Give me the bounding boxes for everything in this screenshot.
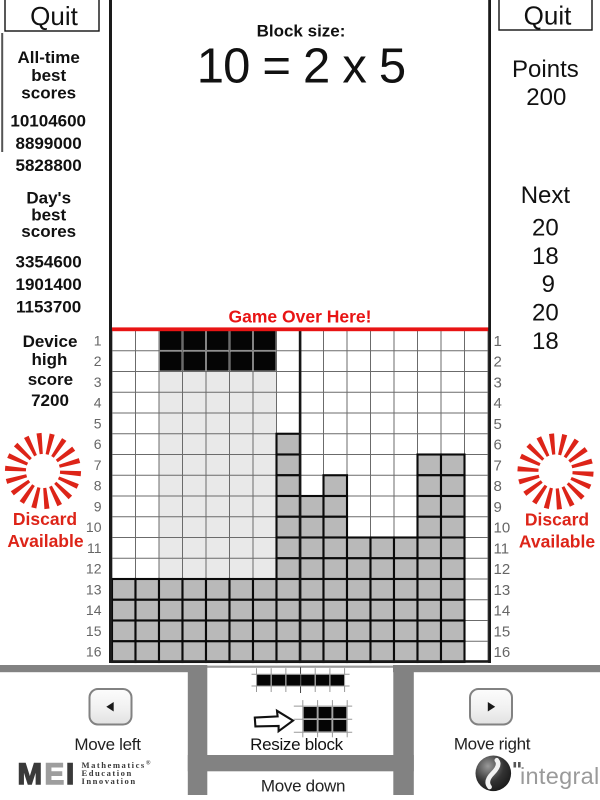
svg-text:2: 2 <box>94 353 102 369</box>
svg-text:5: 5 <box>94 415 102 431</box>
svg-text:5: 5 <box>494 416 502 433</box>
svg-text:20: 20 <box>532 214 559 241</box>
svg-text:7: 7 <box>94 457 102 473</box>
svg-text:9: 9 <box>494 499 502 516</box>
svg-text:I: I <box>66 758 74 791</box>
svg-text:200: 200 <box>526 84 566 111</box>
svg-text:6: 6 <box>94 436 102 452</box>
svg-text:10 = 2 x 5: 10 = 2 x 5 <box>197 40 406 94</box>
svg-text:5828800: 5828800 <box>16 156 82 175</box>
svg-text:Resize block: Resize block <box>250 735 344 754</box>
svg-text:E: E <box>45 758 65 791</box>
svg-text:Move right: Move right <box>454 735 531 754</box>
svg-text:7200: 7200 <box>31 391 69 410</box>
svg-text:16: 16 <box>86 644 102 660</box>
svg-text:1153700: 1153700 <box>16 297 81 316</box>
svg-text:3354600: 3354600 <box>16 253 82 272</box>
svg-text:15: 15 <box>86 623 102 639</box>
svg-text:Available: Available <box>7 531 83 551</box>
svg-text:Discard: Discard <box>13 509 77 529</box>
svg-text:14: 14 <box>494 603 511 620</box>
svg-text:Block size:: Block size: <box>257 22 346 41</box>
svg-text:18: 18 <box>532 328 559 355</box>
svg-text:14: 14 <box>86 602 102 618</box>
svg-text:8899000: 8899000 <box>16 134 82 153</box>
svg-text:13: 13 <box>494 582 511 599</box>
svg-text:12: 12 <box>86 561 102 577</box>
svg-text:10: 10 <box>494 520 511 537</box>
svg-text:Move down: Move down <box>261 776 345 795</box>
svg-text:high: high <box>32 350 68 369</box>
svg-text:6: 6 <box>494 437 502 454</box>
svg-text:integral: integral <box>520 763 599 789</box>
svg-text:8: 8 <box>494 478 502 495</box>
svg-text:Points: Points <box>512 56 579 83</box>
svg-text:10104600: 10104600 <box>10 112 86 131</box>
svg-text:11: 11 <box>87 540 102 556</box>
svg-text:13: 13 <box>86 581 102 597</box>
svg-text:9: 9 <box>94 498 102 514</box>
svg-text:1: 1 <box>494 333 502 350</box>
svg-text:15: 15 <box>494 623 511 640</box>
svg-text:8: 8 <box>94 478 102 494</box>
svg-text:4: 4 <box>494 395 502 412</box>
svg-text:Quit: Quit <box>30 1 78 31</box>
svg-text:Available: Available <box>519 531 595 551</box>
svg-text:18: 18 <box>532 243 559 270</box>
svg-text:scores: scores <box>21 84 76 103</box>
svg-text:Next: Next <box>521 182 571 209</box>
svg-text:Move left: Move left <box>74 735 141 754</box>
svg-text:score: score <box>28 370 73 389</box>
svg-text:2: 2 <box>494 354 502 371</box>
svg-text:M: M <box>18 758 43 791</box>
svg-text:All-time: All-time <box>18 48 80 67</box>
svg-text:®: ® <box>146 760 152 767</box>
svg-text:best: best <box>31 66 66 85</box>
svg-text:3: 3 <box>494 374 502 391</box>
svg-text:3: 3 <box>94 374 102 390</box>
svg-text:Discard: Discard <box>525 509 589 529</box>
svg-text:7: 7 <box>494 457 502 474</box>
svg-text:12: 12 <box>494 561 511 578</box>
svg-text:9: 9 <box>542 271 555 298</box>
svg-text:20: 20 <box>532 300 559 327</box>
svg-text:scores: scores <box>21 222 76 241</box>
svg-text:4: 4 <box>94 395 102 411</box>
svg-text:1901400: 1901400 <box>16 275 82 294</box>
svg-text:Innovation: Innovation <box>82 776 137 786</box>
svg-text:Quit: Quit <box>524 0 572 30</box>
svg-text:16: 16 <box>494 644 511 661</box>
svg-text:1: 1 <box>94 332 102 348</box>
svg-text:Game Over Here!: Game Over Here! <box>229 307 372 327</box>
svg-text:11: 11 <box>494 540 510 557</box>
svg-text:Device: Device <box>23 332 78 351</box>
svg-text:10: 10 <box>86 519 102 535</box>
